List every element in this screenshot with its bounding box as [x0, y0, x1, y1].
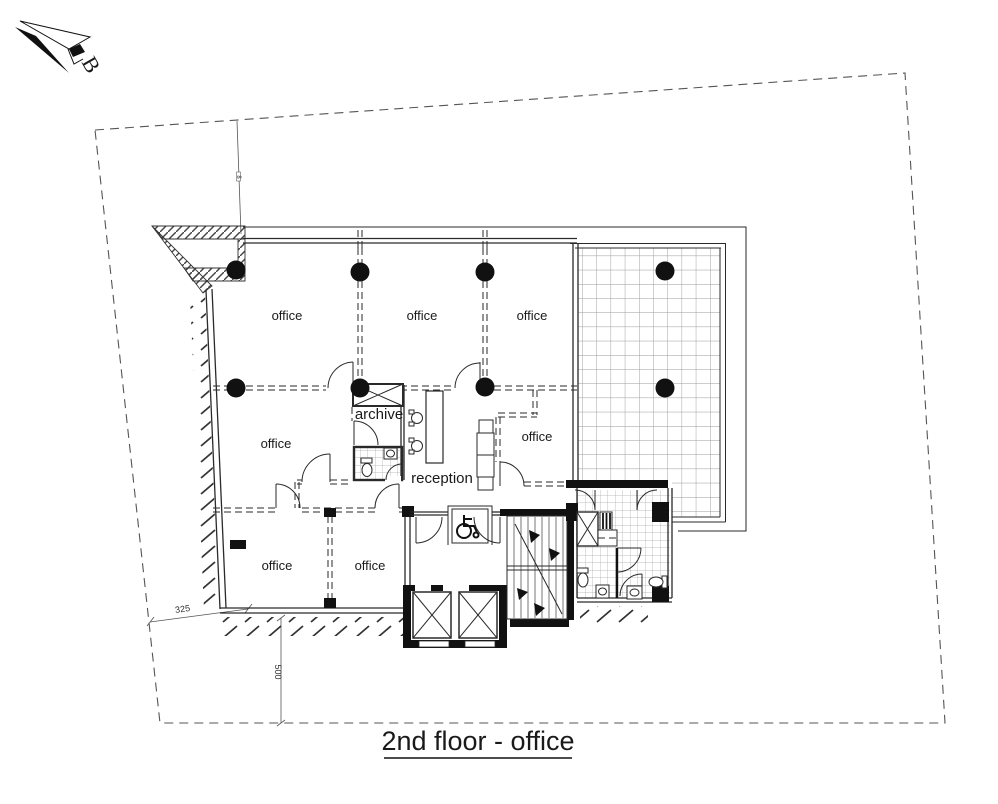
shelf-unit	[600, 512, 612, 530]
room-label-office-top-mid: office	[407, 308, 438, 323]
door-archive	[354, 421, 378, 445]
elevator-shafts	[403, 585, 507, 648]
toilet	[362, 464, 372, 477]
door-bottom-office-left	[276, 484, 300, 508]
sofa	[477, 420, 494, 490]
room-label-office-bottom-left: office	[262, 558, 293, 573]
lobby-west-wall	[402, 506, 414, 587]
dimension-325-label: 325	[174, 603, 190, 615]
toilet-left	[577, 568, 588, 587]
interior-partitions	[213, 248, 577, 608]
column	[476, 263, 495, 282]
archive-room	[352, 384, 404, 483]
elevator-door-2	[465, 641, 495, 647]
boundary-reference-line: 8	[235, 121, 241, 234]
top-left-hatched-wall	[152, 226, 245, 293]
door-lobby-right	[474, 517, 500, 543]
bottom-right-hatch-ticks	[580, 606, 648, 623]
top-glazed-wall	[243, 230, 577, 252]
reception-chair-1	[409, 410, 423, 426]
column	[227, 379, 246, 398]
reception-chair-2	[409, 438, 423, 454]
column	[351, 379, 370, 398]
right-glazed-wall	[573, 243, 578, 482]
north-arrow-icon: B	[15, 21, 106, 77]
bottom-wall-hatch-ticks	[222, 617, 405, 636]
room-label-office-mid-left: office	[261, 436, 292, 451]
room-label-archive: archive	[355, 406, 403, 423]
column	[656, 379, 675, 398]
door-corridor-step	[302, 454, 330, 482]
floor-plan-page: 8 325 500	[0, 0, 998, 804]
archive-wc	[354, 447, 402, 483]
terrace-tile-grid	[578, 248, 720, 480]
staircase	[500, 509, 574, 627]
dimension-500-label: 500	[273, 664, 283, 679]
north-arrow-label: B	[77, 52, 106, 77]
terrace-tile-grid-lower	[672, 480, 720, 517]
room-label-reception: reception	[411, 470, 473, 487]
column	[227, 261, 246, 280]
door-lobby-left	[416, 517, 442, 543]
elevator-door-1	[419, 641, 449, 647]
room-label-office-bottom-mid: office	[355, 558, 386, 573]
corridor-wall	[566, 480, 668, 488]
partition-v3	[324, 508, 336, 608]
elevator-core	[403, 506, 507, 648]
reception-desk	[426, 391, 443, 463]
room-labels: office office office office office offic…	[261, 308, 553, 573]
wc-block	[566, 480, 672, 602]
drawing-title: 2nd floor - office	[381, 726, 574, 758]
room-label-office-mid-right: office	[522, 429, 553, 444]
column	[351, 263, 370, 282]
door-top-office-1	[328, 362, 353, 388]
drawing-title-text: 2nd floor - office	[381, 726, 574, 756]
door-mid-right-office	[500, 462, 524, 486]
column	[656, 262, 675, 281]
urinal	[627, 586, 642, 599]
partition-h2	[213, 480, 406, 512]
room-label-office-top-right: office	[517, 308, 548, 323]
toilet-tank	[361, 458, 372, 463]
floor-plan-svg: 8 325 500	[0, 0, 998, 804]
room-label-office-top-left: office	[272, 308, 303, 323]
left-exterior-wall	[190, 289, 226, 609]
column	[476, 378, 495, 397]
wall-fixture	[230, 540, 246, 549]
toilet-right	[649, 576, 667, 588]
door-bottom-office-mid	[375, 484, 399, 508]
